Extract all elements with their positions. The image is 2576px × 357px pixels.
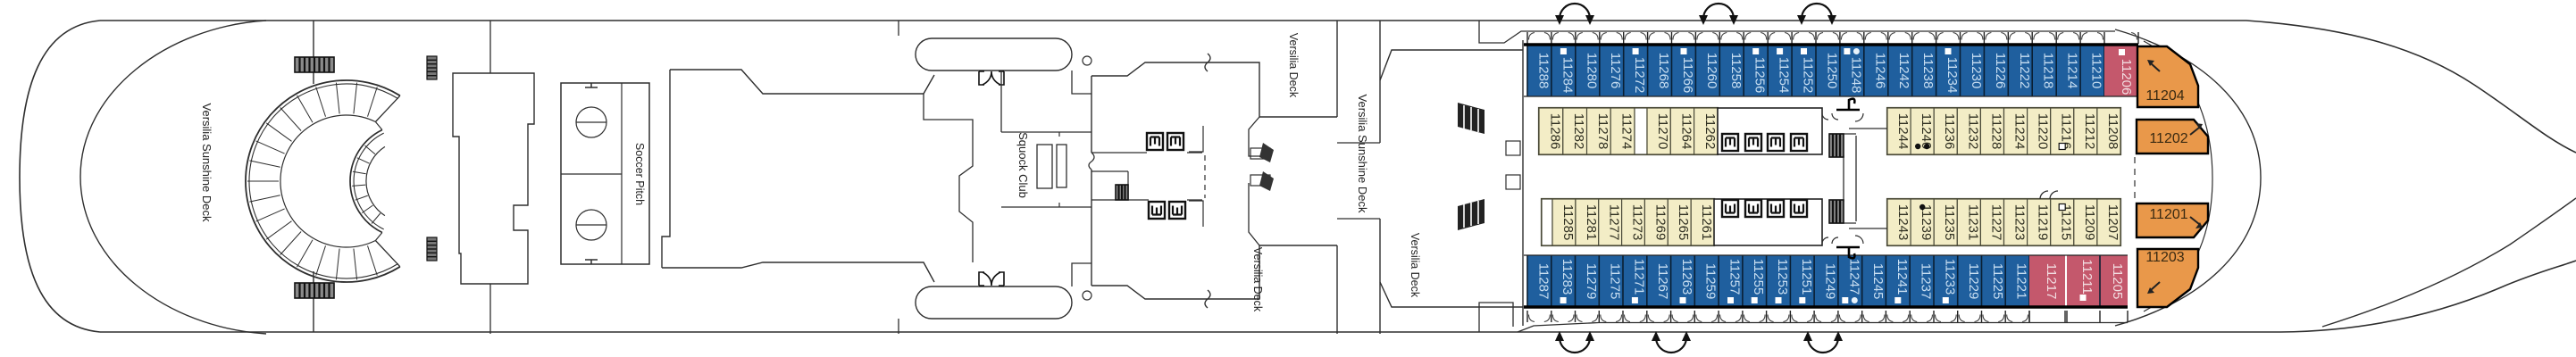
svg-text:11258: 11258 xyxy=(1728,53,1744,89)
svg-text:11237: 11237 xyxy=(1919,263,1934,300)
svg-text:11212: 11212 xyxy=(2082,113,2097,150)
svg-text:11221: 11221 xyxy=(2014,263,2029,300)
svg-text:11280: 11280 xyxy=(1584,53,1599,89)
svg-text:11246: 11246 xyxy=(1872,53,1887,89)
svg-text:11277: 11277 xyxy=(1607,204,1622,241)
svg-text:11206: 11206 xyxy=(2119,59,2134,95)
svg-text:11201: 11201 xyxy=(2149,207,2187,222)
svg-text:11275: 11275 xyxy=(1608,263,1623,300)
svg-text:11266: 11266 xyxy=(1680,57,1695,94)
svg-text:11253: 11253 xyxy=(1775,259,1790,295)
svg-text:11220: 11220 xyxy=(2036,113,2051,150)
svg-text:11273: 11273 xyxy=(1630,204,1645,241)
svg-text:Versilia Sunshine Deck: Versilia Sunshine Deck xyxy=(200,104,213,222)
svg-text:11243: 11243 xyxy=(1895,204,1911,241)
svg-text:11257: 11257 xyxy=(1727,259,1743,295)
svg-text:11278: 11278 xyxy=(1595,113,1610,150)
svg-text:11219: 11219 xyxy=(2036,204,2051,241)
svg-text:11202: 11202 xyxy=(2149,131,2187,146)
svg-text:11252: 11252 xyxy=(1801,57,1816,94)
svg-text:11255: 11255 xyxy=(1751,259,1766,295)
svg-text:11254: 11254 xyxy=(1777,57,1792,94)
svg-text:11276: 11276 xyxy=(1608,53,1623,89)
svg-text:Versilia Deck: Versilia Deck xyxy=(1287,33,1300,98)
svg-text:11248: 11248 xyxy=(1848,57,1863,94)
svg-text:11259: 11259 xyxy=(1703,263,1719,300)
svg-text:11207: 11207 xyxy=(2105,204,2120,241)
svg-text:11264: 11264 xyxy=(1679,113,1694,150)
svg-text:11232: 11232 xyxy=(1965,113,1980,150)
svg-text:11241: 11241 xyxy=(1894,259,1910,295)
svg-text:11230: 11230 xyxy=(1969,53,1984,89)
svg-text:11270: 11270 xyxy=(1655,113,1670,150)
svg-text:11231: 11231 xyxy=(1965,204,1980,241)
svg-text:11262: 11262 xyxy=(1702,113,1718,150)
svg-text:11214: 11214 xyxy=(2065,53,2080,89)
svg-text:11274: 11274 xyxy=(1619,113,1635,150)
svg-text:11205: 11205 xyxy=(2110,263,2125,300)
svg-text:Versilia Deck: Versilia Deck xyxy=(1409,233,1421,298)
svg-text:11242: 11242 xyxy=(1896,53,1911,89)
svg-text:11263: 11263 xyxy=(1679,259,1694,295)
svg-text:11261: 11261 xyxy=(1699,204,1714,241)
svg-text:11244: 11244 xyxy=(1895,113,1911,150)
svg-text:Soccer Pitch: Soccer Pitch xyxy=(633,143,646,205)
svg-text:11233: 11233 xyxy=(1942,259,1957,295)
svg-text:11228: 11228 xyxy=(1988,113,2003,150)
svg-text:11224: 11224 xyxy=(2012,113,2028,150)
svg-text:11285: 11285 xyxy=(1560,204,1576,241)
svg-text:Versilia Deck: Versilia Deck xyxy=(1251,247,1264,312)
svg-text:Versilia Sunshine Deck: Versilia Sunshine Deck xyxy=(1356,95,1369,213)
svg-text:11282: 11282 xyxy=(1571,113,1586,150)
svg-text:11210: 11210 xyxy=(2089,53,2104,89)
svg-text:11249: 11249 xyxy=(1823,263,1838,300)
svg-text:11265: 11265 xyxy=(1676,204,1691,241)
svg-text:11234: 11234 xyxy=(1945,57,1960,94)
svg-text:11236: 11236 xyxy=(1942,113,1957,150)
svg-text:11208: 11208 xyxy=(2105,113,2120,150)
svg-text:11281: 11281 xyxy=(1584,204,1599,241)
svg-text:11288: 11288 xyxy=(1536,53,1551,89)
svg-text:11238: 11238 xyxy=(1920,53,1936,89)
svg-text:11283: 11283 xyxy=(1560,259,1575,295)
svg-text:11272: 11272 xyxy=(1632,57,1647,94)
svg-text:11235: 11235 xyxy=(1942,204,1957,241)
svg-text:11286: 11286 xyxy=(1547,113,1562,150)
svg-text:11250: 11250 xyxy=(1825,53,1840,89)
svg-text:11279: 11279 xyxy=(1584,263,1599,300)
svg-text:11229: 11229 xyxy=(1966,263,1981,300)
svg-text:11223: 11223 xyxy=(2012,204,2028,241)
svg-text:11218: 11218 xyxy=(2041,53,2056,89)
svg-text:11260: 11260 xyxy=(1704,53,1719,89)
svg-text:Squock Club: Squock Club xyxy=(1016,132,1030,198)
svg-text:11256: 11256 xyxy=(1752,57,1768,94)
svg-text:11287: 11287 xyxy=(1535,263,1551,300)
svg-text:11284: 11284 xyxy=(1560,57,1575,94)
svg-text:11211: 11211 xyxy=(2079,259,2095,295)
svg-text:11245: 11245 xyxy=(1870,263,1886,300)
svg-text:11209: 11209 xyxy=(2082,204,2097,241)
svg-text:11226: 11226 xyxy=(1993,53,2008,89)
svg-text:11251: 11251 xyxy=(1799,259,1814,295)
svg-text:11217: 11217 xyxy=(2044,263,2059,300)
svg-text:11271: 11271 xyxy=(1631,259,1646,295)
svg-text:11268: 11268 xyxy=(1656,53,1671,89)
svg-text:11269: 11269 xyxy=(1652,204,1668,241)
svg-text:11225: 11225 xyxy=(1990,263,2005,300)
svg-text:11227: 11227 xyxy=(1988,204,2003,241)
svg-text:11267: 11267 xyxy=(1655,263,1670,300)
svg-text:11203: 11203 xyxy=(2145,250,2184,265)
svg-text:11204: 11204 xyxy=(2145,88,2184,104)
svg-text:11222: 11222 xyxy=(2017,53,2032,89)
svg-text:11247: 11247 xyxy=(1846,259,1861,295)
